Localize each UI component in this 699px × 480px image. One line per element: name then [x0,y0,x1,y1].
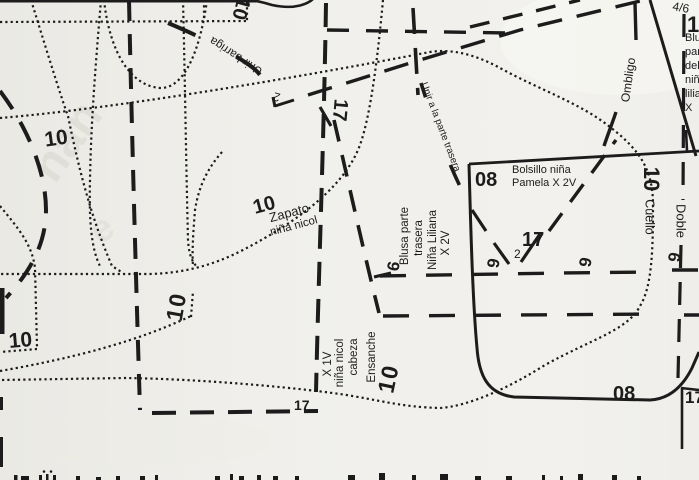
svg-text:10: 10 [161,290,192,323]
svg-text:17: 17 [522,229,544,251]
svg-text:cabeza: cabeza [348,338,360,376]
svg-text:17: 17 [328,98,352,122]
svg-text:X: X [685,102,693,114]
svg-text:Blu: Blu [685,32,699,44]
svg-text:Bolsillo niña: Bolsillo niña [512,164,572,176]
svg-text:niña nicol: niña nicol [334,339,346,388]
svg-text:trasera: trasera [413,220,425,256]
svg-text:08: 08 [613,383,635,405]
svg-text:08: 08 [475,169,497,191]
svg-text:10: 10 [8,328,33,353]
svg-text:Niña Liliana: Niña Liliana [427,209,439,270]
svg-text:10: 10 [639,167,664,191]
svg-text:10: 10 [43,126,69,152]
svg-text:17: 17 [685,388,699,407]
svg-text:Blusa parte: Blusa parte [399,207,411,265]
svg-text:17: 17 [294,397,310,413]
svg-text:par: par [685,46,699,58]
svg-text:niñ: niñ [685,74,699,86]
svg-text:2: 2 [514,247,521,261]
svg-text:Doble: Doble [674,204,689,238]
svg-text:X 1V: X 1V [322,351,334,376]
svg-text:X 2V: X 2V [440,230,452,255]
svg-text:Cuello: Cuello [643,199,657,234]
svg-text:lilia: lilia [685,88,699,100]
svg-text:Pamela X 2V: Pamela X 2V [512,177,577,189]
svg-text:del: del [685,60,699,72]
